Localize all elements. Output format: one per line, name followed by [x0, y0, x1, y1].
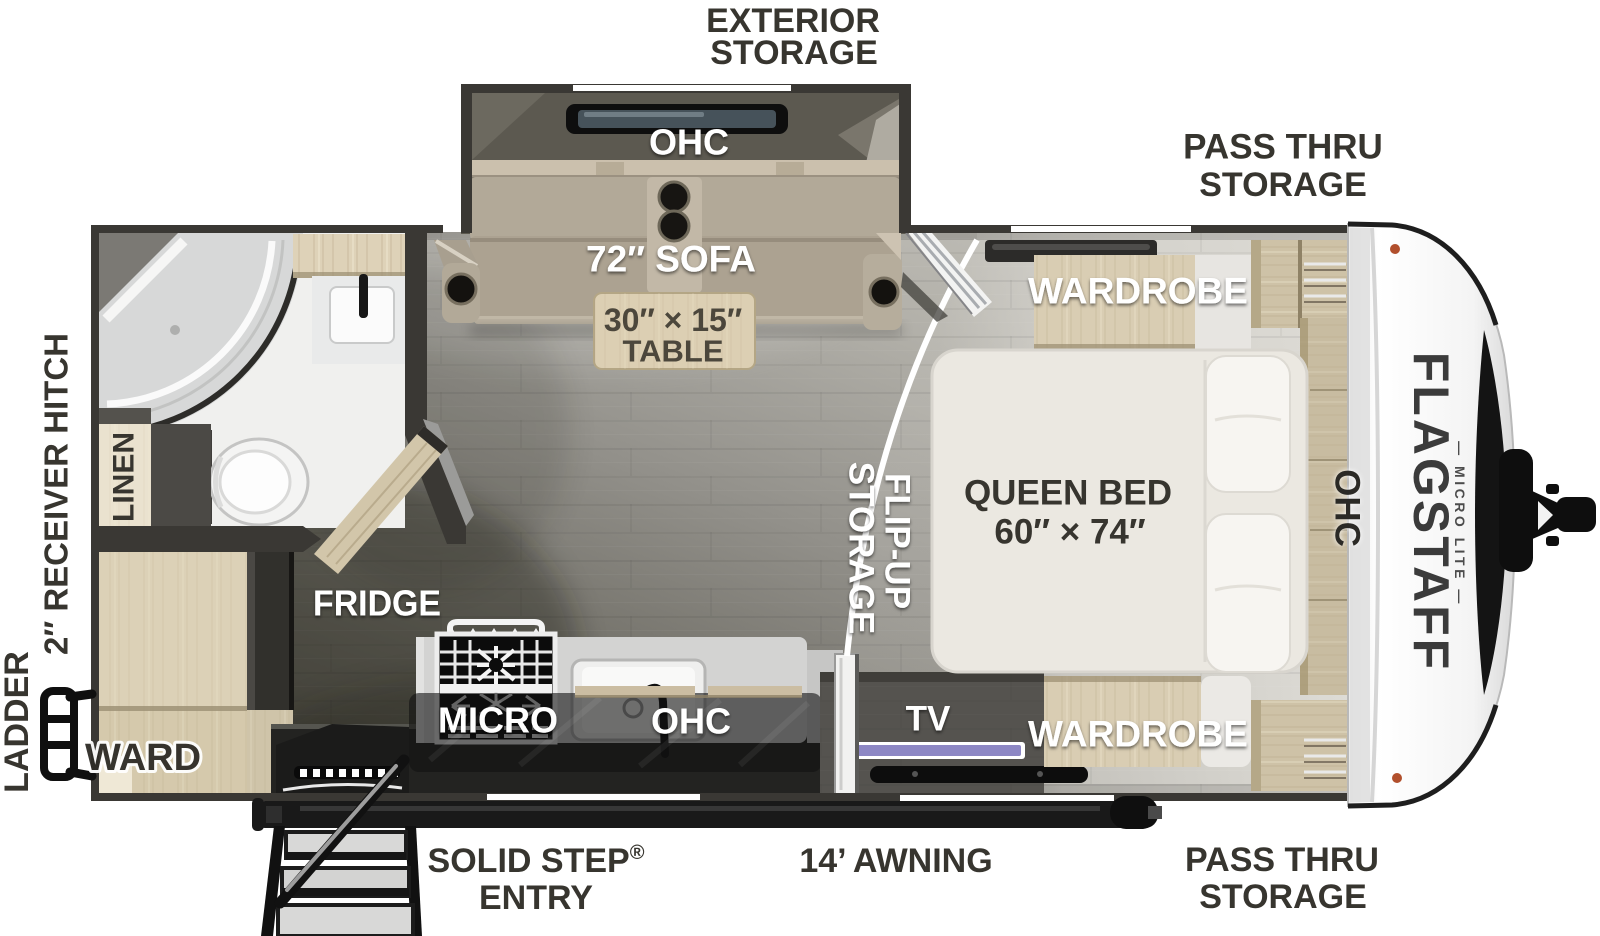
svg-text:FLIP-UP: FLIP-UP: [878, 473, 917, 609]
svg-text:FLAGSTAFF: FLAGSTAFF: [1403, 352, 1459, 672]
svg-text:SOLID STEP®: SOLID STEP®: [428, 842, 645, 880]
svg-text:LINEN: LINEN: [108, 432, 141, 522]
svg-text:WARDROBE: WARDROBE: [1028, 271, 1248, 312]
svg-text:TV: TV: [906, 700, 951, 739]
svg-text:PASS THRU: PASS THRU: [1183, 128, 1383, 167]
svg-text:STORAGE: STORAGE: [842, 462, 881, 634]
svg-text:WARD: WARD: [85, 737, 201, 779]
svg-text:72″ SOFA: 72″ SOFA: [586, 239, 756, 280]
svg-text:STORAGE: STORAGE: [1199, 878, 1367, 916]
svg-text:STORAGE: STORAGE: [1199, 166, 1367, 204]
svg-text:— MICRO LITE —: — MICRO LITE —: [1452, 441, 1468, 607]
svg-text:STORAGE: STORAGE: [710, 34, 878, 72]
svg-text:14’ AWNING: 14’ AWNING: [799, 842, 992, 880]
svg-text:2″ RECEIVER HITCH: 2″ RECEIVER HITCH: [38, 333, 75, 655]
svg-text:WARDROBE: WARDROBE: [1028, 714, 1248, 755]
svg-text:OHC: OHC: [651, 701, 731, 742]
svg-text:OHC: OHC: [1328, 469, 1367, 547]
svg-text:OHC: OHC: [649, 122, 729, 163]
svg-text:60″ × 74″: 60″ × 74″: [994, 513, 1146, 552]
svg-text:MICRO: MICRO: [438, 700, 558, 741]
svg-text:TABLE: TABLE: [622, 334, 723, 369]
svg-text:ENTRY: ENTRY: [479, 879, 593, 917]
svg-text:FRIDGE: FRIDGE: [313, 583, 441, 624]
svg-text:LADDER: LADDER: [0, 651, 36, 793]
svg-text:PASS THRU: PASS THRU: [1185, 841, 1379, 879]
svg-text:QUEEN BED: QUEEN BED: [964, 474, 1172, 513]
